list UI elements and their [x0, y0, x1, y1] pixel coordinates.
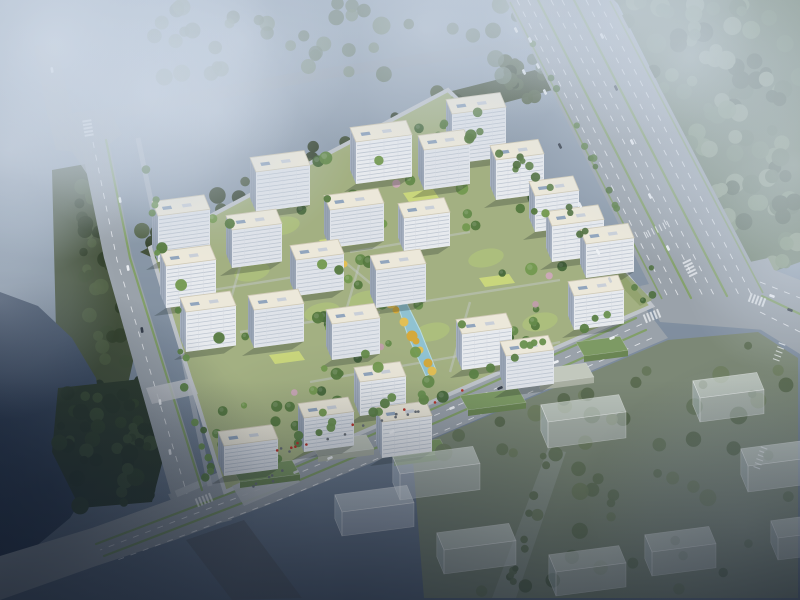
- tree-canopy: [546, 272, 553, 279]
- tree-canopy: [642, 366, 652, 376]
- tree-highlight: [641, 298, 644, 301]
- aerial-architectural-rendering: [0, 0, 800, 600]
- tree-canopy: [649, 265, 654, 270]
- render-canvas: [0, 0, 800, 600]
- tree-canopy: [486, 363, 495, 372]
- tree-canopy: [213, 332, 224, 343]
- tree-highlight: [527, 264, 533, 270]
- tree-canopy: [516, 204, 525, 213]
- tree-canopy: [520, 340, 529, 349]
- tree-canopy: [532, 301, 539, 308]
- tree-highlight: [365, 257, 371, 263]
- golden-tree: [400, 318, 409, 327]
- bottom-vignette: [0, 380, 800, 600]
- tree-highlight: [314, 313, 319, 318]
- tree-highlight: [530, 318, 534, 322]
- tree-canopy: [580, 324, 589, 333]
- tree-canopy: [649, 291, 657, 299]
- tree-canopy: [511, 354, 519, 362]
- tree-canopy: [531, 208, 538, 215]
- tree-canopy: [317, 259, 327, 269]
- tree-canopy: [462, 223, 470, 231]
- tree-highlight: [500, 270, 503, 273]
- tree-canopy: [154, 250, 160, 256]
- tree-canopy: [539, 338, 546, 345]
- tree-canopy: [592, 315, 599, 322]
- tree-highlight: [472, 222, 476, 226]
- tree-canopy: [541, 209, 549, 217]
- tree-highlight: [243, 334, 246, 337]
- tree-canopy: [334, 265, 344, 275]
- tree-canopy: [175, 279, 187, 291]
- tree-highlight: [464, 210, 468, 214]
- tree-canopy: [175, 307, 182, 314]
- top-haze-wash: [0, 0, 800, 150]
- tree-canopy: [603, 311, 611, 319]
- golden-tree: [413, 338, 420, 345]
- tree-highlight: [345, 276, 349, 280]
- tree-highlight: [357, 256, 362, 261]
- tree-canopy: [458, 320, 466, 328]
- tree-highlight: [355, 282, 359, 286]
- tree-canopy: [631, 284, 638, 291]
